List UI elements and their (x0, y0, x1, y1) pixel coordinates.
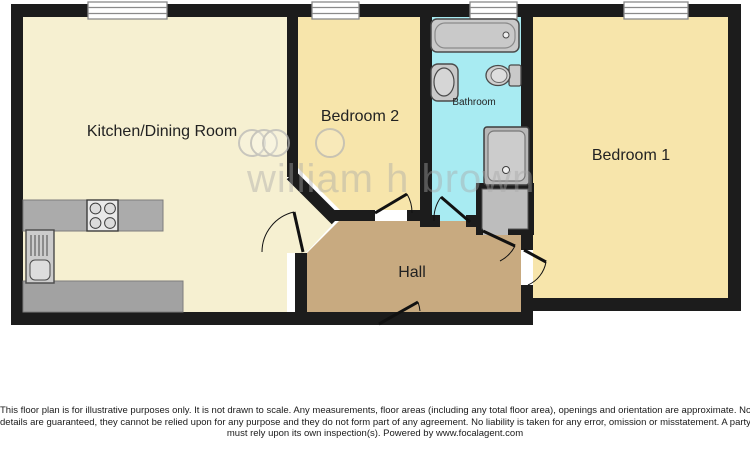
disclaimer-line-1: This floor plan is for illustrative purp… (0, 405, 750, 417)
disclaimer-line-2: details are guaranteed, they cannot be r… (0, 417, 750, 429)
wall-kitchen-bedroom2 (287, 17, 298, 177)
bathroom-label: Bathroom (452, 97, 495, 108)
wall-bathroom-stub-left (432, 215, 440, 227)
toilet (486, 65, 521, 86)
worktop-bottom (23, 281, 183, 312)
disclaimer-line-3: must rely upon its own inspection(s). Po… (0, 428, 750, 440)
floorplan-drawing: william h brown Kitchen/Dining Room Bedr… (0, 0, 750, 400)
wall-left (11, 4, 23, 325)
wash-basin (431, 64, 458, 101)
floorplan-page: william h brown Kitchen/Dining Room Bedr… (0, 0, 750, 452)
wall-hall-bedroom1-upper (521, 235, 533, 250)
wall-kitchen-hall (295, 253, 307, 312)
watermark-text: william h brown (246, 157, 535, 201)
window-kitchen (88, 2, 167, 19)
hall-label: Hall (398, 264, 426, 281)
window-bedroom2 (312, 2, 359, 19)
kitchen-label: Kitchen/Dining Room (87, 123, 237, 140)
wall-bottom-bedroom1 (521, 298, 741, 311)
bedroom2-label: Bedroom 2 (321, 108, 399, 125)
disclaimer: This floor plan is for illustrative purp… (0, 405, 750, 440)
bedroom1-label: Bedroom 1 (592, 147, 670, 164)
window-bedroom1 (624, 2, 688, 19)
kitchen-sink (26, 230, 54, 283)
window-bathroom (470, 2, 517, 19)
wall-right (728, 4, 741, 304)
wall-hall-bedroom1-lower (521, 285, 533, 313)
wall-bedroom2-hall-left (330, 210, 375, 221)
wall-bottom-left (11, 312, 533, 325)
bathtub (431, 19, 519, 52)
hob (87, 200, 118, 231)
